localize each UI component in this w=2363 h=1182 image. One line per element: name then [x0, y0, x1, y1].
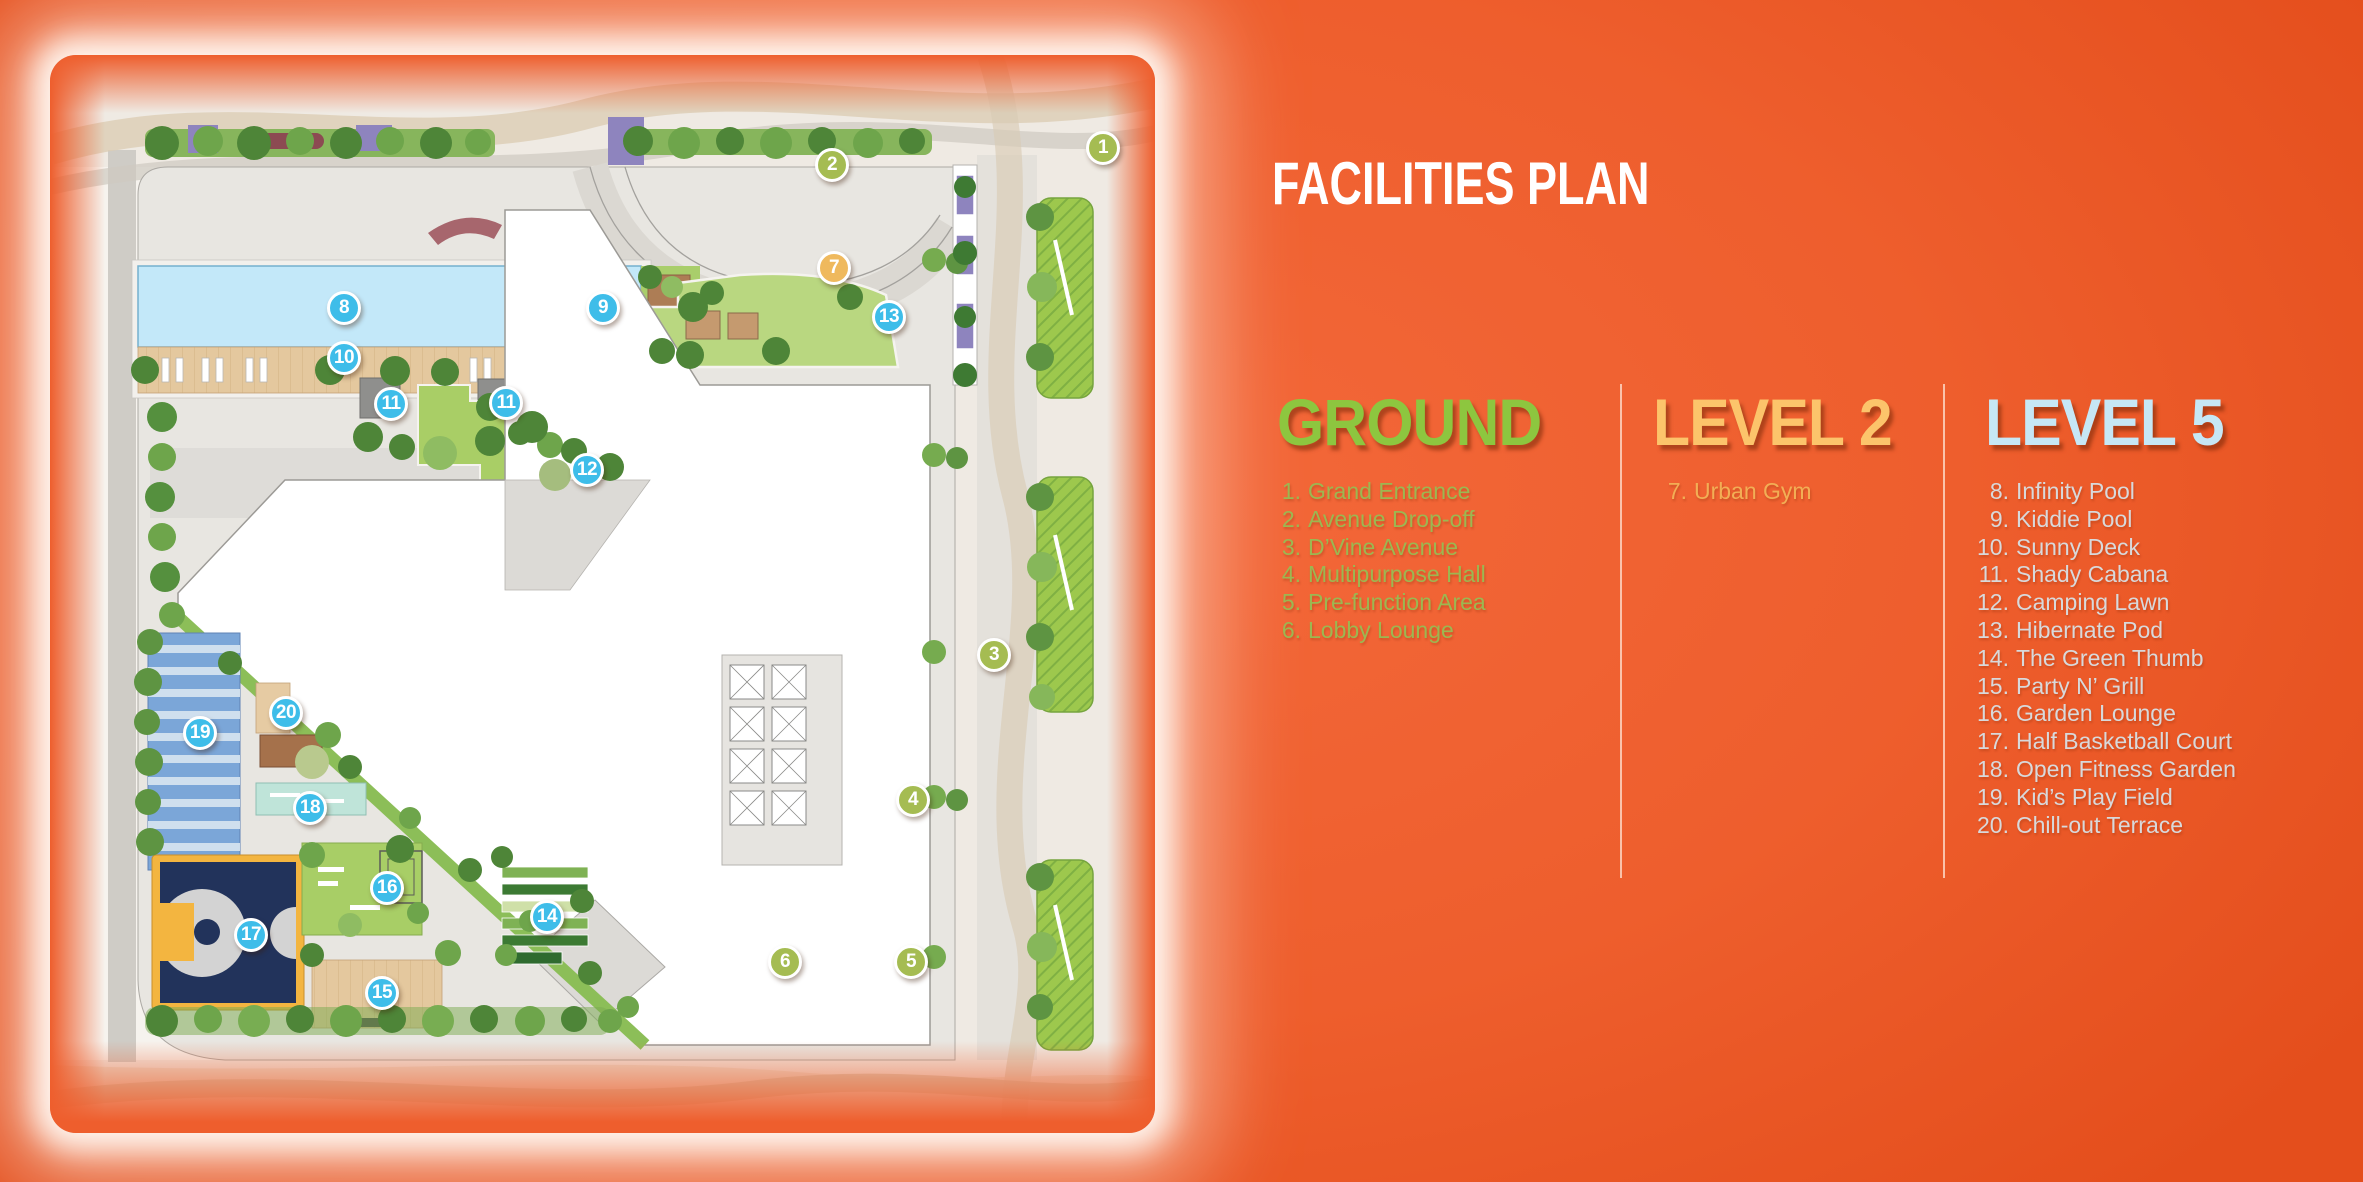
map-marker-4: 4 [896, 783, 930, 817]
legend-item-label: Half Basketball Court [2016, 728, 2232, 756]
legend-items-ground: 1.Grand Entrance2.Avenue Drop-off3.D’Vin… [1277, 478, 1617, 645]
map-marker-11: 11 [489, 386, 523, 420]
legend-item-label: Urban Gym [1694, 478, 1812, 506]
legend-column-ground: GROUND 1.Grand Entrance2.Avenue Drop-off… [1277, 386, 1617, 645]
legend-item-label: Kiddie Pool [2016, 506, 2132, 534]
legend-items-level5: 8.Infinity Pool9.Kiddie Pool10.Sunny Dec… [1952, 478, 2352, 839]
page-title: FACILITIES PLAN [1272, 152, 1650, 216]
map-marker-6: 6 [768, 945, 802, 979]
legend-item-number: 3. [1277, 534, 1301, 562]
legend-item-number: 15. [1952, 673, 2009, 701]
legend-item-15: 15.Party N’ Grill [1952, 673, 2352, 701]
legend-item-17: 17.Half Basketball Court [1952, 728, 2352, 756]
legend-item-11: 11.Shady Cabana [1952, 561, 2352, 589]
legend-item-6: 6.Lobby Lounge [1277, 617, 1617, 645]
map-marker-16: 16 [370, 871, 404, 905]
map-marker-13: 13 [872, 300, 906, 334]
legend-item-number: 18. [1952, 756, 2009, 784]
legend-item-19: 19.Kid’s Play Field [1952, 784, 2352, 812]
legend-item-number: 9. [1952, 506, 2009, 534]
map-marker-18: 18 [293, 791, 327, 825]
legend-item-label: Party N’ Grill [2016, 673, 2144, 701]
legend-item-number: 17. [1952, 728, 2009, 756]
map-marker-15: 15 [365, 976, 399, 1010]
legend-item-label: Camping Lawn [2016, 589, 2169, 617]
map-marker-20: 20 [269, 696, 303, 730]
map-marker-17: 17 [234, 918, 268, 952]
legend-item-number: 1. [1277, 478, 1301, 506]
legend-item-10: 10.Sunny Deck [1952, 534, 2352, 562]
legend-item-12: 12.Camping Lawn [1952, 589, 2352, 617]
legend-item-number: 20. [1952, 812, 2009, 840]
map-marker-11: 11 [374, 387, 408, 421]
map-marker-9: 9 [586, 291, 620, 325]
legend-item-number: 19. [1952, 784, 2009, 812]
legend-item-number: 13. [1952, 617, 2009, 645]
legend-divider-2 [1943, 384, 1945, 878]
legend-item-label: Avenue Drop-off [1308, 506, 1475, 534]
map-marker-19: 19 [183, 716, 217, 750]
map-marker-1: 1 [1086, 131, 1120, 165]
legend-header-level2: LEVEL 2 [1653, 386, 1911, 458]
legend-item-number: 7. [1661, 478, 1687, 506]
legend-item-number: 10. [1952, 534, 2009, 562]
legend-header-ground: GROUND [1277, 386, 1590, 458]
legend-item-number: 2. [1277, 506, 1301, 534]
legend-item-number: 8. [1952, 478, 2009, 506]
legend-item-number: 11. [1952, 561, 2009, 589]
legend-column-level2: LEVEL 2 7.Urban Gym [1653, 386, 1933, 506]
legend-item-label: D’Vine Avenue [1308, 534, 1458, 562]
legend-item-label: Pre-function Area [1308, 589, 1486, 617]
legend-item-number: 4. [1277, 561, 1301, 589]
legend-item-label: Lobby Lounge [1308, 617, 1454, 645]
legend-item-18: 18.Open Fitness Garden [1952, 756, 2352, 784]
legend-item-label: Multipurpose Hall [1308, 561, 1486, 589]
legend-column-level5: LEVEL 5 8.Infinity Pool9.Kiddie Pool10.S… [1952, 386, 2352, 839]
legend-item-7: 7.Urban Gym [1661, 478, 1933, 506]
legend-item-2: 2.Avenue Drop-off [1277, 506, 1617, 534]
legend-header-level5: LEVEL 5 [1985, 386, 2323, 458]
legend-item-number: 14. [1952, 645, 2009, 673]
map-marker-12: 12 [570, 453, 604, 487]
legend-item-label: Sunny Deck [2016, 534, 2140, 562]
map-marker-3: 3 [977, 638, 1011, 672]
legend-item-label: Shady Cabana [2016, 561, 2168, 589]
legend-item-13: 13.Hibernate Pod [1952, 617, 2352, 645]
legend-divider-1 [1620, 384, 1622, 878]
legend-item-5: 5.Pre-function Area [1277, 589, 1617, 617]
legend-item-9: 9.Kiddie Pool [1952, 506, 2352, 534]
legend-item-14: 14.The Green Thumb [1952, 645, 2352, 673]
legend-item-number: 5. [1277, 589, 1301, 617]
legend-item-label: Open Fitness Garden [2016, 756, 2236, 784]
legend-item-number: 12. [1952, 589, 2009, 617]
legend-item-4: 4.Multipurpose Hall [1277, 561, 1617, 589]
map-marker-5: 5 [894, 945, 928, 979]
legend-item-label: The Green Thumb [2016, 645, 2204, 673]
map-marker-8: 8 [327, 291, 361, 325]
legend-item-16: 16.Garden Lounge [1952, 700, 2352, 728]
site-plan: 123456789101111121314151617181920 [50, 55, 1155, 1133]
legend-item-number: 16. [1952, 700, 2009, 728]
map-marker-14: 14 [530, 900, 564, 934]
legend-item-20: 20.Chill-out Terrace [1952, 812, 2352, 840]
legend-items-level2: 7.Urban Gym [1661, 478, 1933, 506]
legend-item-label: Infinity Pool [2016, 478, 2135, 506]
map-marker-2: 2 [815, 148, 849, 182]
legend-item-3: 3.D’Vine Avenue [1277, 534, 1617, 562]
legend-item-label: Garden Lounge [2016, 700, 2176, 728]
legend-item-label: Grand Entrance [1308, 478, 1470, 506]
marker-layer: 123456789101111121314151617181920 [50, 55, 1155, 1133]
map-marker-10: 10 [327, 341, 361, 375]
legend-item-1: 1.Grand Entrance [1277, 478, 1617, 506]
legend-item-label: Kid’s Play Field [2016, 784, 2173, 812]
legend-item-number: 6. [1277, 617, 1301, 645]
map-marker-7: 7 [817, 251, 851, 285]
legend-item-8: 8.Infinity Pool [1952, 478, 2352, 506]
legend-item-label: Chill-out Terrace [2016, 812, 2183, 840]
legend-item-label: Hibernate Pod [2016, 617, 2163, 645]
